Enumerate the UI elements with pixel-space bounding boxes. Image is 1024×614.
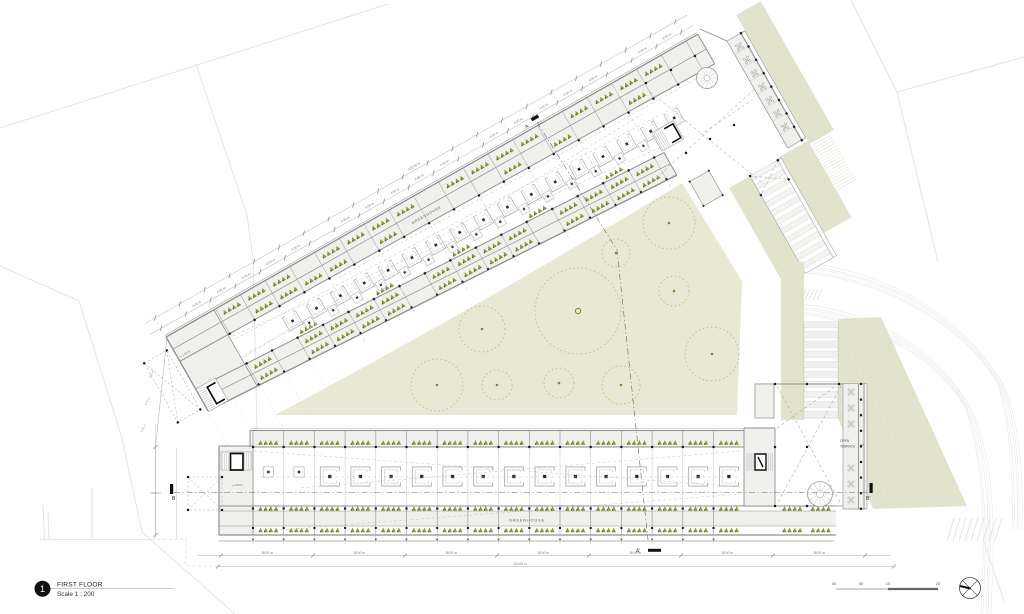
svg-text:FIRST FLOOR: FIRST FLOOR [57, 581, 103, 588]
svg-text:05: 05 [859, 581, 864, 586]
svg-text:20: 20 [936, 581, 941, 586]
svg-text:18.00 m: 18.00 m [813, 551, 825, 555]
svg-text:18.00 m: 18.00 m [445, 551, 457, 555]
svg-text:132.00 m: 132.00 m [513, 562, 527, 566]
svg-text:18.00 m: 18.00 m [629, 551, 641, 555]
svg-text:18.00 m: 18.00 m [353, 551, 365, 555]
svg-text:B’: B’ [866, 496, 870, 502]
svg-text:18.00 m: 18.00 m [721, 551, 733, 555]
svg-text:18.00 m: 18.00 m [261, 551, 273, 555]
svg-text:16.00 m: 16.00 m [150, 491, 161, 495]
svg-text:↘ 2.00 m: ↘ 2.00 m [231, 483, 243, 487]
svg-text:10: 10 [886, 581, 891, 586]
svg-text:GREENHOUSE: GREENHOUSE [509, 519, 545, 523]
svg-text:TERRACE: TERRACE [840, 445, 855, 449]
svg-text:00: 00 [832, 581, 837, 586]
svg-text:Scale 1 : 200: Scale 1 : 200 [57, 591, 95, 598]
svg-text:OPEN: OPEN [840, 439, 850, 443]
svg-text:18.00 m: 18.00 m [537, 551, 549, 555]
svg-text:1: 1 [40, 584, 45, 594]
